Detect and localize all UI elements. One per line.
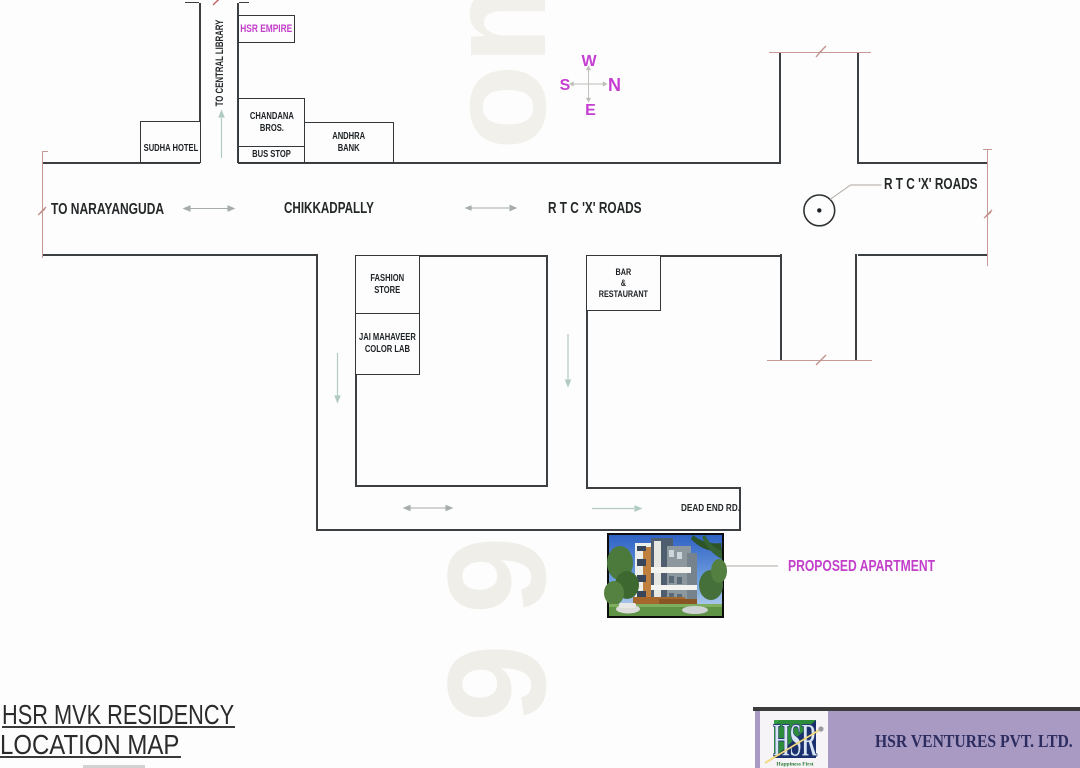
svg-text:Happiness First: Happiness First <box>776 762 813 768</box>
svg-text:E: E <box>585 102 596 119</box>
svg-text:N: N <box>608 75 621 95</box>
svg-text:S: S <box>560 77 571 94</box>
svg-text:HSR: HSR <box>773 714 818 767</box>
svg-text:W: W <box>581 53 597 70</box>
